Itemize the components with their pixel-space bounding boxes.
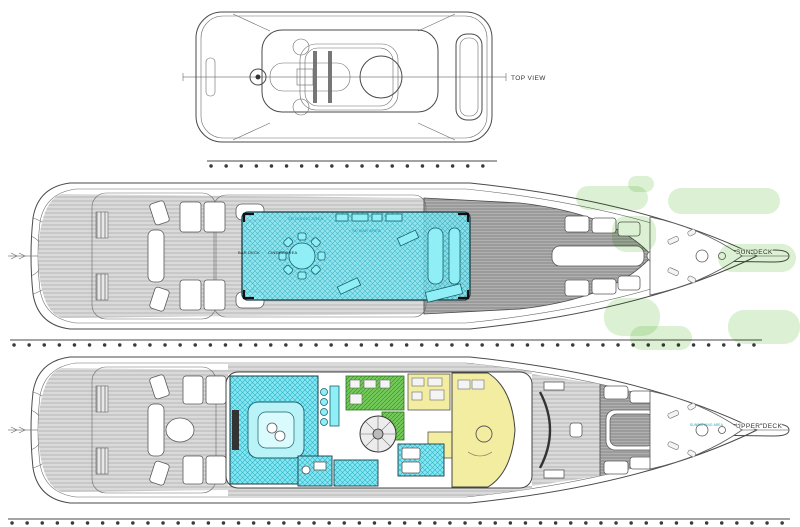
watermark-shape (668, 188, 780, 214)
upper-deck-label: UPPER DECK (736, 423, 783, 430)
top-view-plan: TOP VIEW (183, 12, 546, 142)
watermark-shape (728, 310, 800, 344)
station-ruler-top (207, 161, 497, 166)
top-view-label: TOP VIEW (511, 75, 546, 82)
watermark-shape (576, 186, 648, 210)
station-ruler-bottom (8, 519, 790, 523)
yacht-plans-page: TOP VIEW (0, 0, 800, 527)
upper-deck-plan: SUNBATHING AREA UPPER DECK (8, 357, 789, 503)
watermark-shape (630, 326, 692, 350)
watermark-shape (718, 244, 796, 272)
upper-deck-sunbathing-label: SUNBATHING AREA (690, 423, 724, 427)
sun-deck-cinema-label: CINEMA AREA (268, 250, 297, 255)
sun-deck-dining-label: SD DINING AREA (288, 216, 323, 221)
yacht-deck-plans-drawing: TOP VIEW (0, 0, 800, 527)
sun-deck-bar-label: SD BAR AREA (352, 228, 381, 233)
sun-deck-bardeck-label: BAR DECK (238, 250, 260, 255)
watermark-shape (612, 216, 656, 252)
